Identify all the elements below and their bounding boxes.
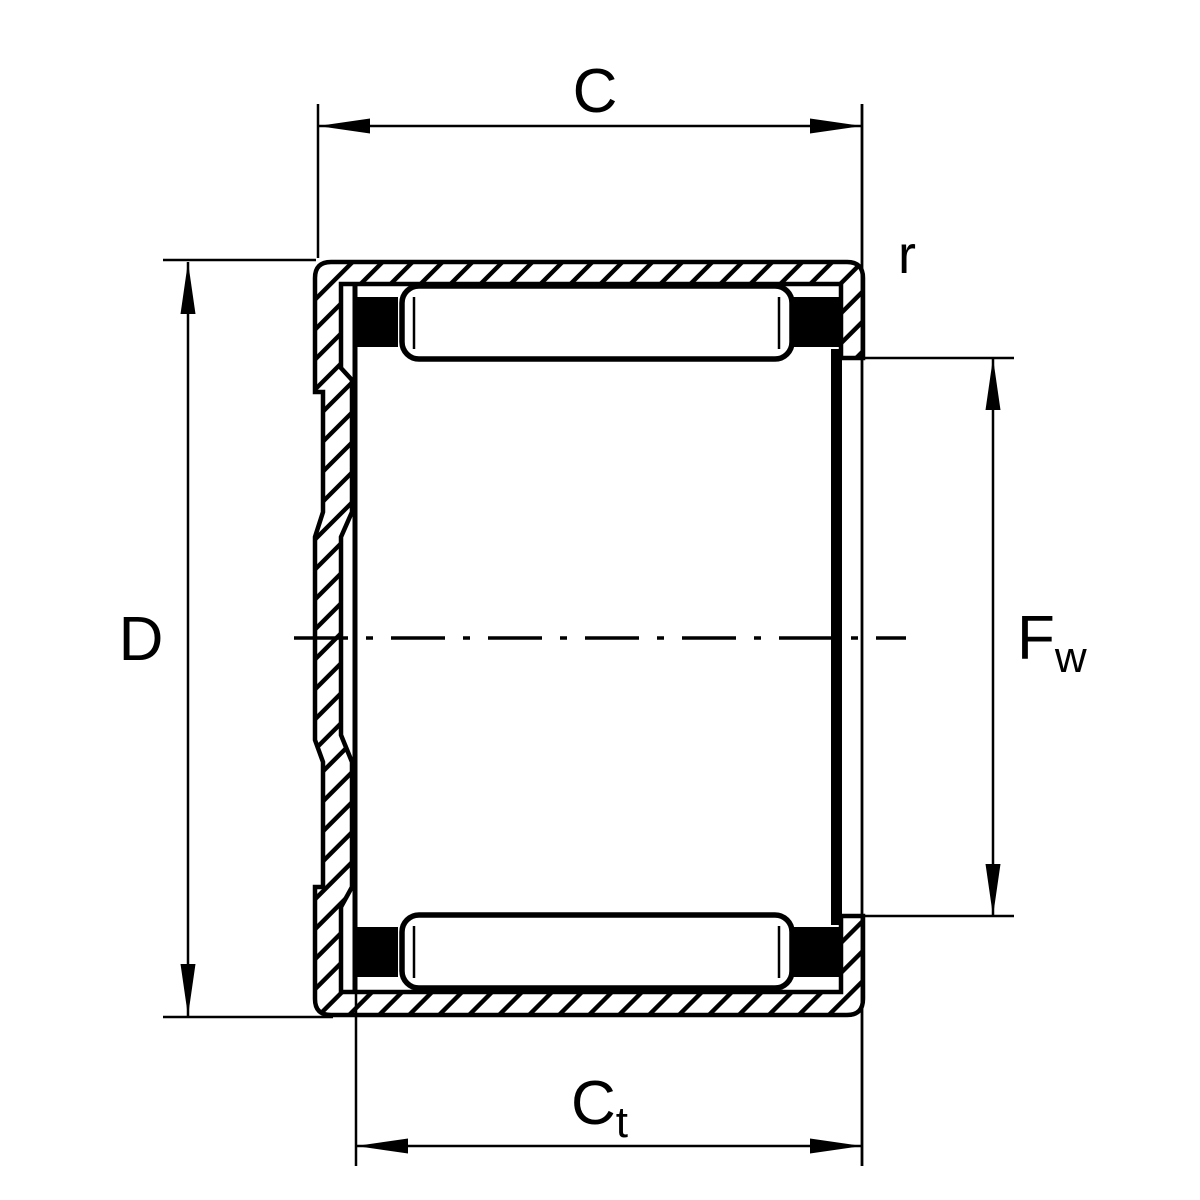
bearing-cross-section-drawing: C D Fw Ct r <box>0 0 1200 1200</box>
cage-block-top-left <box>357 297 398 347</box>
label-ct-main: C <box>571 1069 616 1138</box>
cage-block-top-right <box>791 297 839 347</box>
technical-drawing-page: C D Fw Ct r <box>0 0 1200 1200</box>
label-ct-subscript: t <box>616 1098 628 1147</box>
needle-roller-bottom <box>402 915 792 988</box>
drawing-background <box>0 0 1200 1200</box>
label-r: r <box>898 225 916 285</box>
label-d: D <box>119 605 164 674</box>
cage-block-bottom-right <box>791 927 839 977</box>
label-c: C <box>573 57 618 126</box>
label-fw-subscript: w <box>1054 633 1087 682</box>
cage-block-bottom-left <box>357 927 398 977</box>
needle-roller-top <box>402 286 792 359</box>
label-fw-main: F <box>1017 604 1055 673</box>
